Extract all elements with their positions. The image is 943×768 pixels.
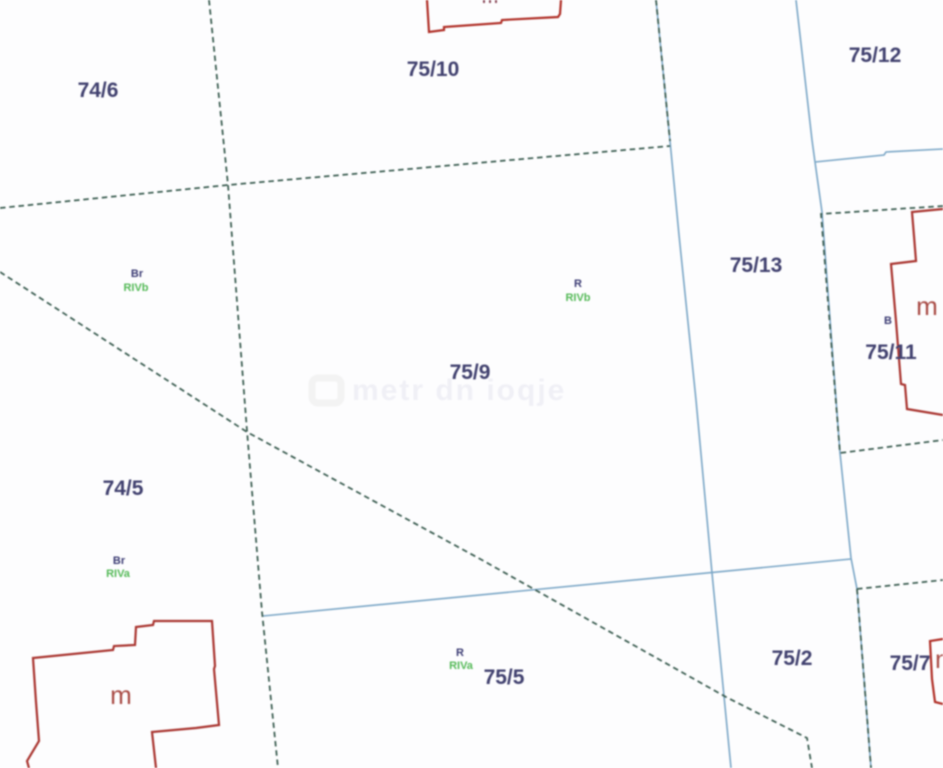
svg-text:75/11: 75/11: [865, 341, 917, 364]
svg-text:m: m: [110, 680, 132, 710]
svg-text:74/5: 74/5: [103, 477, 144, 500]
svg-text:RIVa: RIVa: [449, 660, 474, 672]
svg-text:RIVb: RIVb: [565, 292, 590, 304]
svg-text:75/13: 75/13: [730, 254, 783, 277]
svg-text:m: m: [916, 291, 938, 321]
svg-text:75/10: 75/10: [407, 58, 460, 81]
svg-text:Br: Br: [131, 268, 144, 280]
svg-text:75/12: 75/12: [849, 44, 902, 67]
svg-text:RIVb: RIVb: [123, 282, 148, 294]
svg-text:RIVa: RIVa: [106, 568, 131, 580]
svg-text:B: B: [884, 315, 892, 327]
svg-text:75/7: 75/7: [890, 652, 931, 675]
svg-text:R: R: [574, 278, 582, 290]
svg-text:75/9: 75/9: [450, 361, 491, 384]
svg-text:R: R: [456, 647, 464, 659]
svg-text:75/5: 75/5: [484, 666, 525, 689]
svg-text:m: m: [935, 644, 943, 674]
svg-text:75/2: 75/2: [772, 647, 813, 670]
svg-text:74/6: 74/6: [78, 79, 119, 102]
svg-text:Br: Br: [113, 555, 126, 567]
